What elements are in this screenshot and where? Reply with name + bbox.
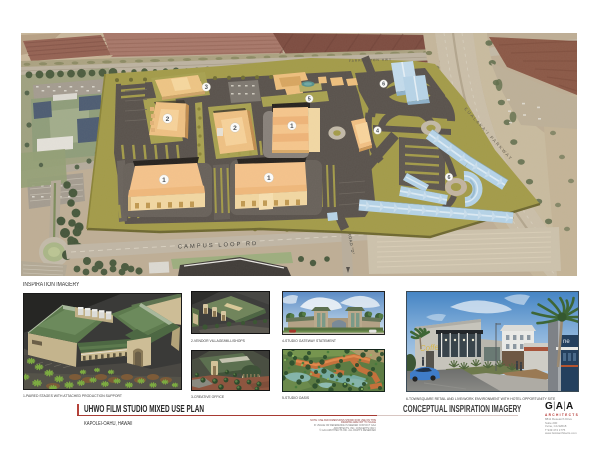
svg-text:ne: ne [563, 339, 570, 345]
